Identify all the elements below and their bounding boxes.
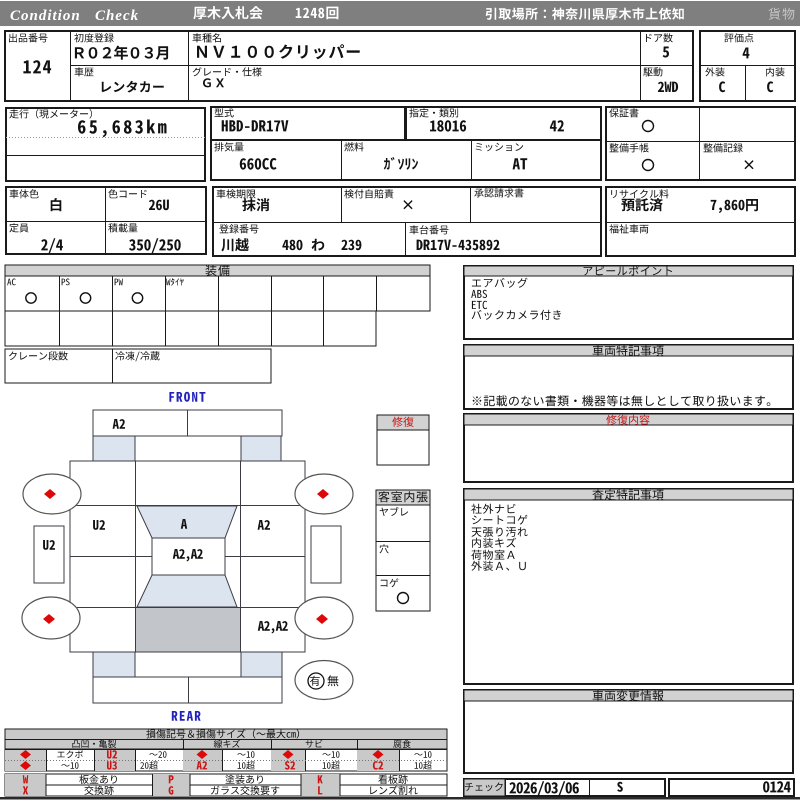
- svg-text:Condition Check: Condition Check: [10, 8, 139, 24]
